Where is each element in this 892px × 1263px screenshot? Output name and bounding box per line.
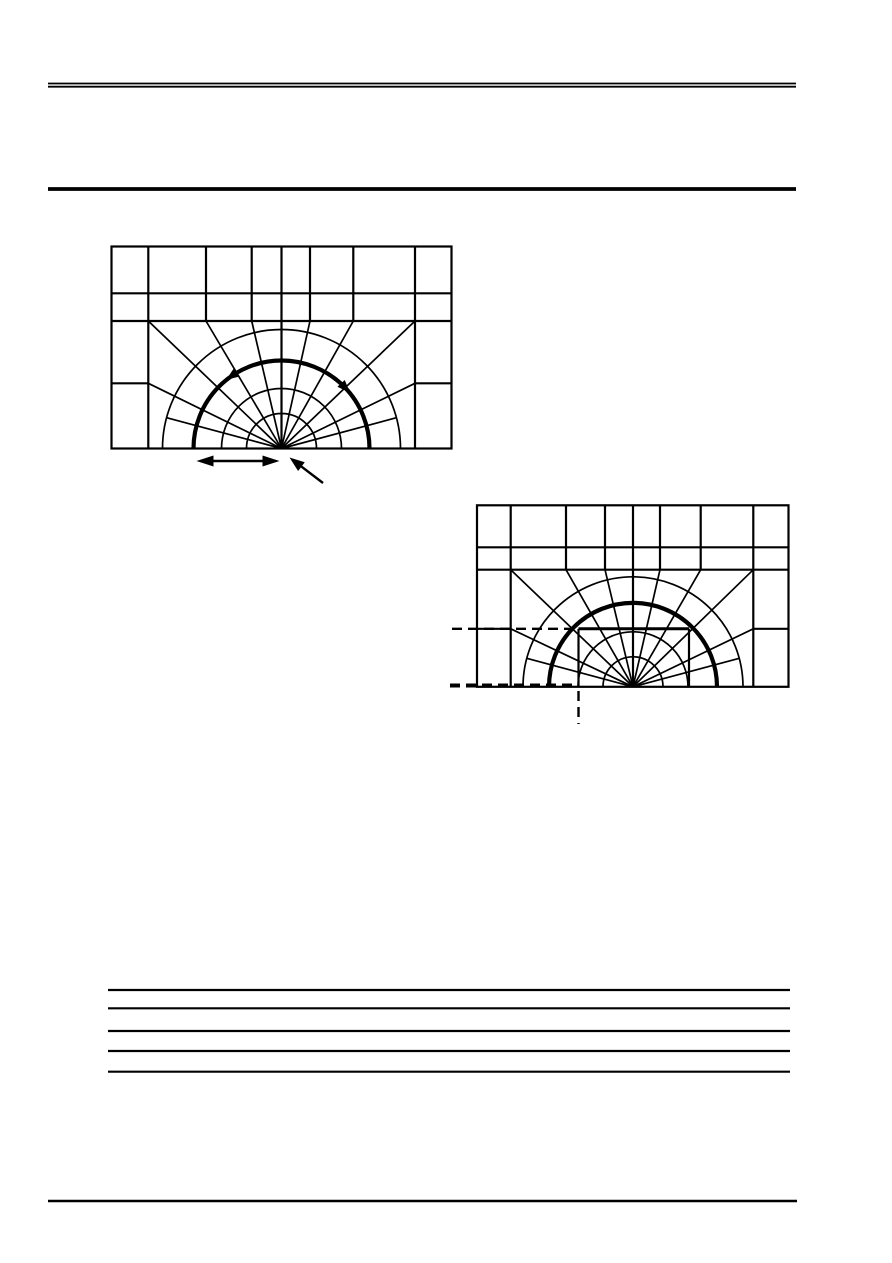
header-double-rule: [48, 84, 796, 87]
radius-dimension-arrow: [197, 456, 280, 467]
pointer-arrowhead: [290, 458, 305, 471]
fan-ray: [148, 321, 281, 449]
fan-ray: [252, 321, 282, 449]
document-page: [0, 0, 892, 1263]
rect-grid: [112, 247, 452, 449]
notch-tip-pointer-arrow: [290, 458, 324, 484]
page-canvas: [0, 0, 892, 1263]
ruled-table-lines: [108, 990, 790, 1072]
dimension-arrowhead-right: [263, 456, 280, 467]
dimension-arrowhead-left: [197, 456, 214, 467]
fan-ray: [633, 629, 753, 687]
rect-grid: [477, 505, 789, 687]
fan-ray: [282, 321, 311, 449]
figure-notch-mesh-with-arrows: [112, 247, 452, 484]
figure-notch-mesh-with-zoom-region: [450, 505, 789, 724]
fan-ray: [282, 321, 416, 449]
fan-ray: [511, 629, 633, 687]
